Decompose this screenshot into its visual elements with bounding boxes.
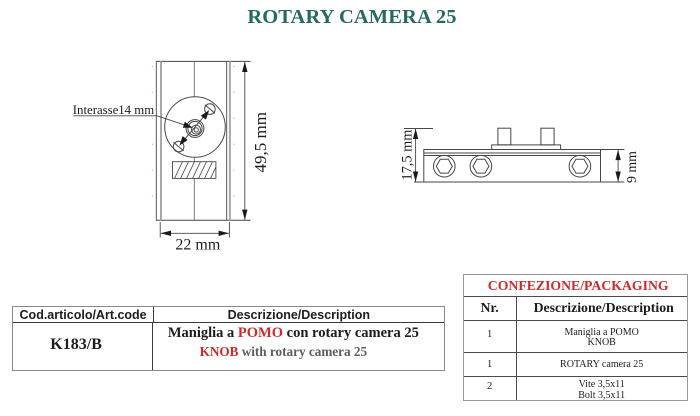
svg-text:9 mm: 9 mm xyxy=(624,151,639,183)
svg-text:22 mm: 22 mm xyxy=(175,236,220,253)
svg-text:49,5 mm: 49,5 mm xyxy=(251,112,270,172)
svg-text:Interasse14 mm: Interasse14 mm xyxy=(73,103,154,117)
svg-text:17,5 mm: 17,5 mm xyxy=(400,130,416,181)
